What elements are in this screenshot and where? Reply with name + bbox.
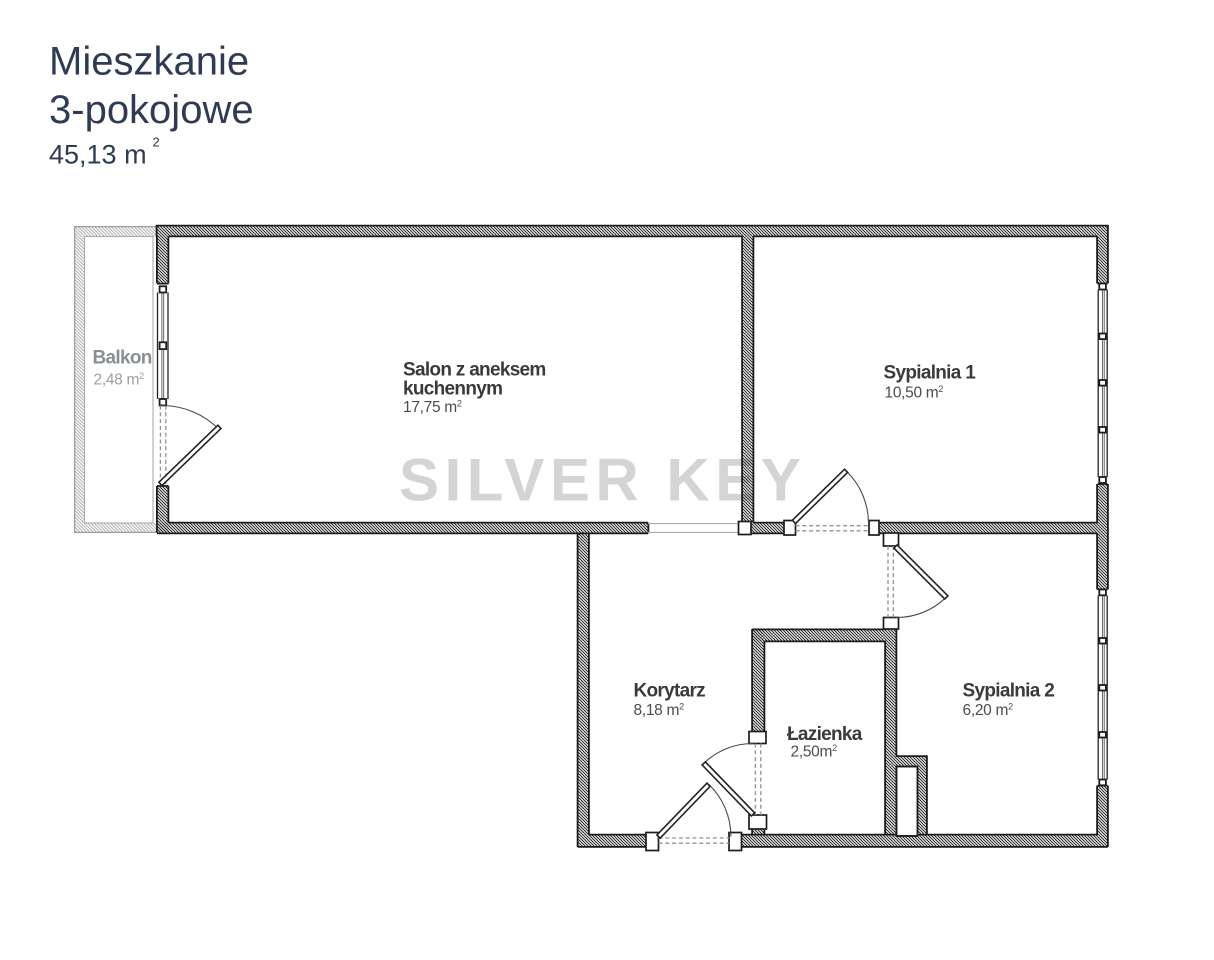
- svg-text:Salon z aneksem: Salon z aneksem: [403, 360, 546, 381]
- svg-text:Balkon: Balkon: [93, 347, 152, 368]
- svg-text:45,13 m: 45,13 m: [49, 140, 147, 170]
- svg-text:2,50m2: 2,50m2: [791, 743, 838, 760]
- svg-text:17,75 m2: 17,75 m2: [403, 399, 462, 416]
- svg-text:6,20 m2: 6,20 m2: [963, 702, 1014, 719]
- svg-text:2,48 m2: 2,48 m2: [94, 371, 145, 388]
- svg-text:Korytarz: Korytarz: [634, 681, 706, 702]
- svg-text:Łazienka: Łazienka: [787, 724, 863, 745]
- svg-text:kuchennym: kuchennym: [403, 379, 502, 400]
- svg-text:Sypialnia 2: Sypialnia 2: [963, 681, 1055, 702]
- svg-text:Sypialnia 1: Sypialnia 1: [884, 362, 977, 383]
- svg-text:3-pokojowe: 3-pokojowe: [49, 88, 254, 132]
- svg-text:8,18 m2: 8,18 m2: [634, 702, 685, 719]
- svg-text:Mieszkanie: Mieszkanie: [49, 40, 249, 84]
- svg-text:10,50 m2: 10,50 m2: [885, 384, 944, 401]
- svg-text:2: 2: [153, 135, 160, 150]
